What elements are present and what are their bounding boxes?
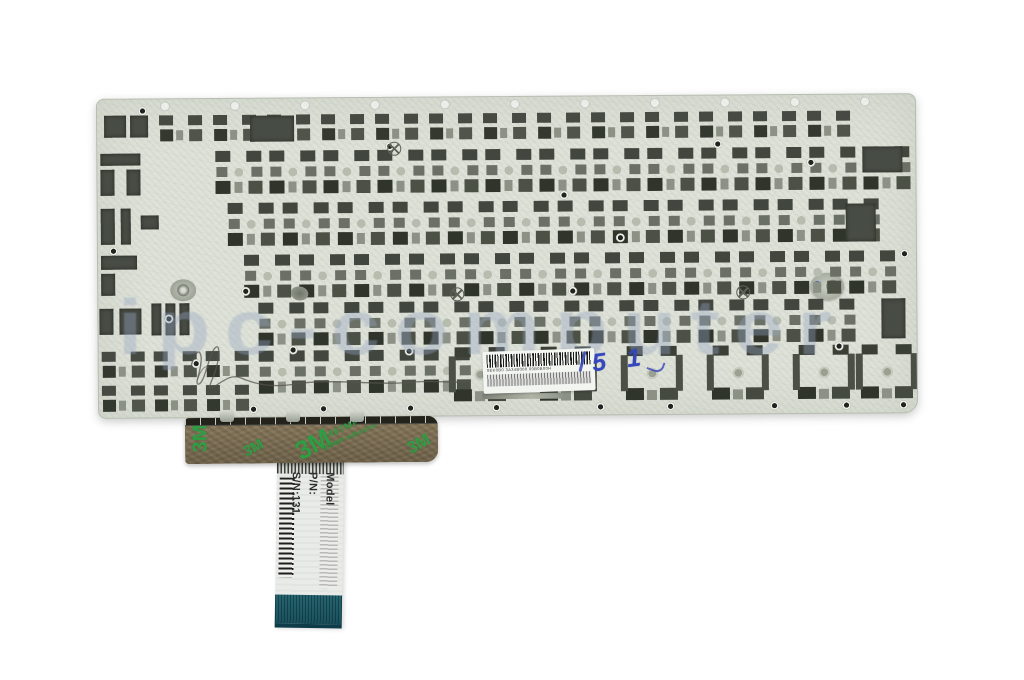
cable-pn-label: P/N: — [303, 472, 321, 562]
screw-hole — [596, 402, 605, 411]
plate-cutout — [269, 150, 317, 194]
rivet — [230, 101, 240, 111]
plate-cutout — [539, 148, 587, 192]
screw-hole — [109, 247, 118, 256]
plate-cutout — [130, 116, 148, 138]
3m-logo: 3M — [404, 430, 434, 459]
plate-cutout — [809, 147, 857, 191]
plate-cutout — [701, 147, 749, 191]
plate-cutout — [121, 209, 131, 245]
screw-hole — [241, 287, 250, 296]
screw-hole — [835, 342, 844, 351]
plate-cutout — [101, 209, 115, 245]
plate-cutout — [723, 199, 771, 243]
rivet — [650, 98, 660, 108]
plate-cutout — [283, 202, 331, 246]
rivet — [300, 100, 310, 110]
plate-cutout — [707, 345, 769, 399]
plate-cutout — [537, 112, 581, 138]
plate-cutout — [119, 309, 141, 335]
plate-cutout — [881, 298, 905, 338]
plate-cutout — [668, 200, 716, 244]
3m-logo: 3M — [240, 436, 266, 461]
plate-cutout — [429, 113, 473, 139]
plate-cutout — [448, 201, 496, 245]
plate-cutout — [588, 300, 636, 344]
screw-hole — [249, 405, 258, 414]
screw-hole — [770, 401, 779, 410]
plate-cutout — [503, 201, 551, 245]
cross-vent — [450, 287, 464, 301]
plate-cutout — [250, 115, 294, 141]
cable-model-label: Model — [320, 472, 338, 562]
plate-cutout — [100, 154, 140, 166]
plate-cutout — [483, 113, 527, 139]
rivet — [510, 99, 520, 109]
plate-cutout — [102, 386, 146, 412]
plate-cutout — [126, 170, 140, 196]
screw-hole — [900, 249, 909, 258]
plate-cutout — [101, 274, 115, 296]
plate-cutout — [643, 300, 691, 344]
cable-sn-label: S/N:131 — [286, 472, 304, 562]
metal-tab — [286, 411, 300, 422]
3m-logo: 3M — [189, 424, 212, 452]
screw-hole — [806, 158, 815, 167]
product-photo: ipc-computer 0EK0B0 3A34B000 00B0B00H 5 … — [0, 0, 1024, 680]
plate-cutout — [377, 150, 425, 194]
plate-cutout — [485, 149, 533, 193]
screw-hole — [560, 191, 569, 200]
plate-cutout — [862, 146, 902, 172]
rivet — [440, 99, 450, 109]
plate-cutout — [593, 148, 641, 192]
plate-cutout — [159, 115, 203, 141]
plate-cutout — [99, 309, 113, 335]
plate-cutout — [794, 251, 842, 295]
plate-cutout — [464, 253, 512, 297]
plate-cutout — [104, 116, 126, 138]
plate-cutout — [755, 147, 803, 191]
screw-hole — [164, 314, 173, 323]
plate-cutout — [629, 252, 677, 296]
plate-cutout — [101, 256, 137, 270]
rivet — [580, 98, 590, 108]
cable-connector-end — [275, 595, 342, 629]
plate-cutout — [323, 150, 371, 194]
cross-vent — [387, 142, 401, 156]
weld-mark — [291, 286, 308, 300]
plate-cutout — [354, 254, 402, 298]
ribbon-cable: Model P/N: S/N:131 — [275, 460, 344, 629]
plate-cutout — [338, 202, 386, 246]
screw-head — [177, 284, 189, 296]
cable-label: Model P/N: S/N:131 — [283, 472, 338, 563]
plate-cutout — [856, 344, 918, 398]
plate-cutout — [645, 112, 689, 138]
signature-scribble — [175, 334, 485, 406]
plate-cutout — [684, 251, 732, 295]
plate-cutout — [647, 148, 695, 192]
plate-cutout — [519, 253, 567, 297]
plate-cutout — [574, 252, 622, 296]
screw-hole — [842, 401, 851, 410]
plate-cutout — [375, 114, 419, 140]
plate-cutout — [431, 149, 479, 193]
adhesive-strip-3m: 3M 3M 3M 467MP 200MP Adhesive 3M — [185, 416, 438, 464]
plate-cutout — [698, 299, 746, 343]
rivet — [370, 100, 380, 110]
rivet — [160, 101, 170, 111]
plate-cutout — [793, 345, 855, 399]
screw-hole — [616, 233, 625, 242]
plate-cutout — [393, 201, 441, 245]
plate-cutout — [849, 250, 897, 294]
plate-cutout — [846, 203, 876, 241]
plate-cutout — [753, 299, 801, 343]
plate-cutout — [778, 199, 826, 243]
vent-slot — [482, 393, 564, 400]
screw-hole — [899, 400, 908, 409]
plate-cutout — [215, 151, 263, 195]
plate-cutout — [100, 170, 114, 196]
plate-cutout — [228, 203, 276, 247]
plate-cutout — [753, 111, 797, 137]
barcode-stripes-secondary — [487, 371, 591, 387]
plate-cutout — [807, 111, 851, 137]
mounting-boss-left — [170, 279, 196, 301]
plate-cutout — [244, 255, 292, 299]
metal-tab — [220, 411, 234, 422]
plate-cutout — [478, 301, 526, 345]
screw-hole — [666, 402, 675, 411]
plate-cutout — [141, 215, 159, 229]
screw-hole — [492, 403, 501, 412]
plate-cutout — [591, 112, 635, 138]
screw-hole — [713, 139, 722, 148]
metal-tab — [350, 411, 364, 422]
rivet — [860, 96, 870, 106]
screw-hole — [568, 287, 577, 296]
cross-vent — [736, 285, 750, 299]
plate-cutout — [699, 111, 743, 137]
plate-cutout — [558, 200, 606, 244]
plate-cutout — [102, 352, 146, 378]
plate-cutout — [179, 303, 189, 335]
rivet — [790, 97, 800, 107]
plate-cutout — [808, 299, 856, 343]
plate-cutout — [151, 303, 161, 335]
plate-cutout — [533, 300, 581, 344]
plate-cutout — [321, 114, 365, 140]
screw-hole — [138, 107, 147, 116]
rivet — [720, 97, 730, 107]
